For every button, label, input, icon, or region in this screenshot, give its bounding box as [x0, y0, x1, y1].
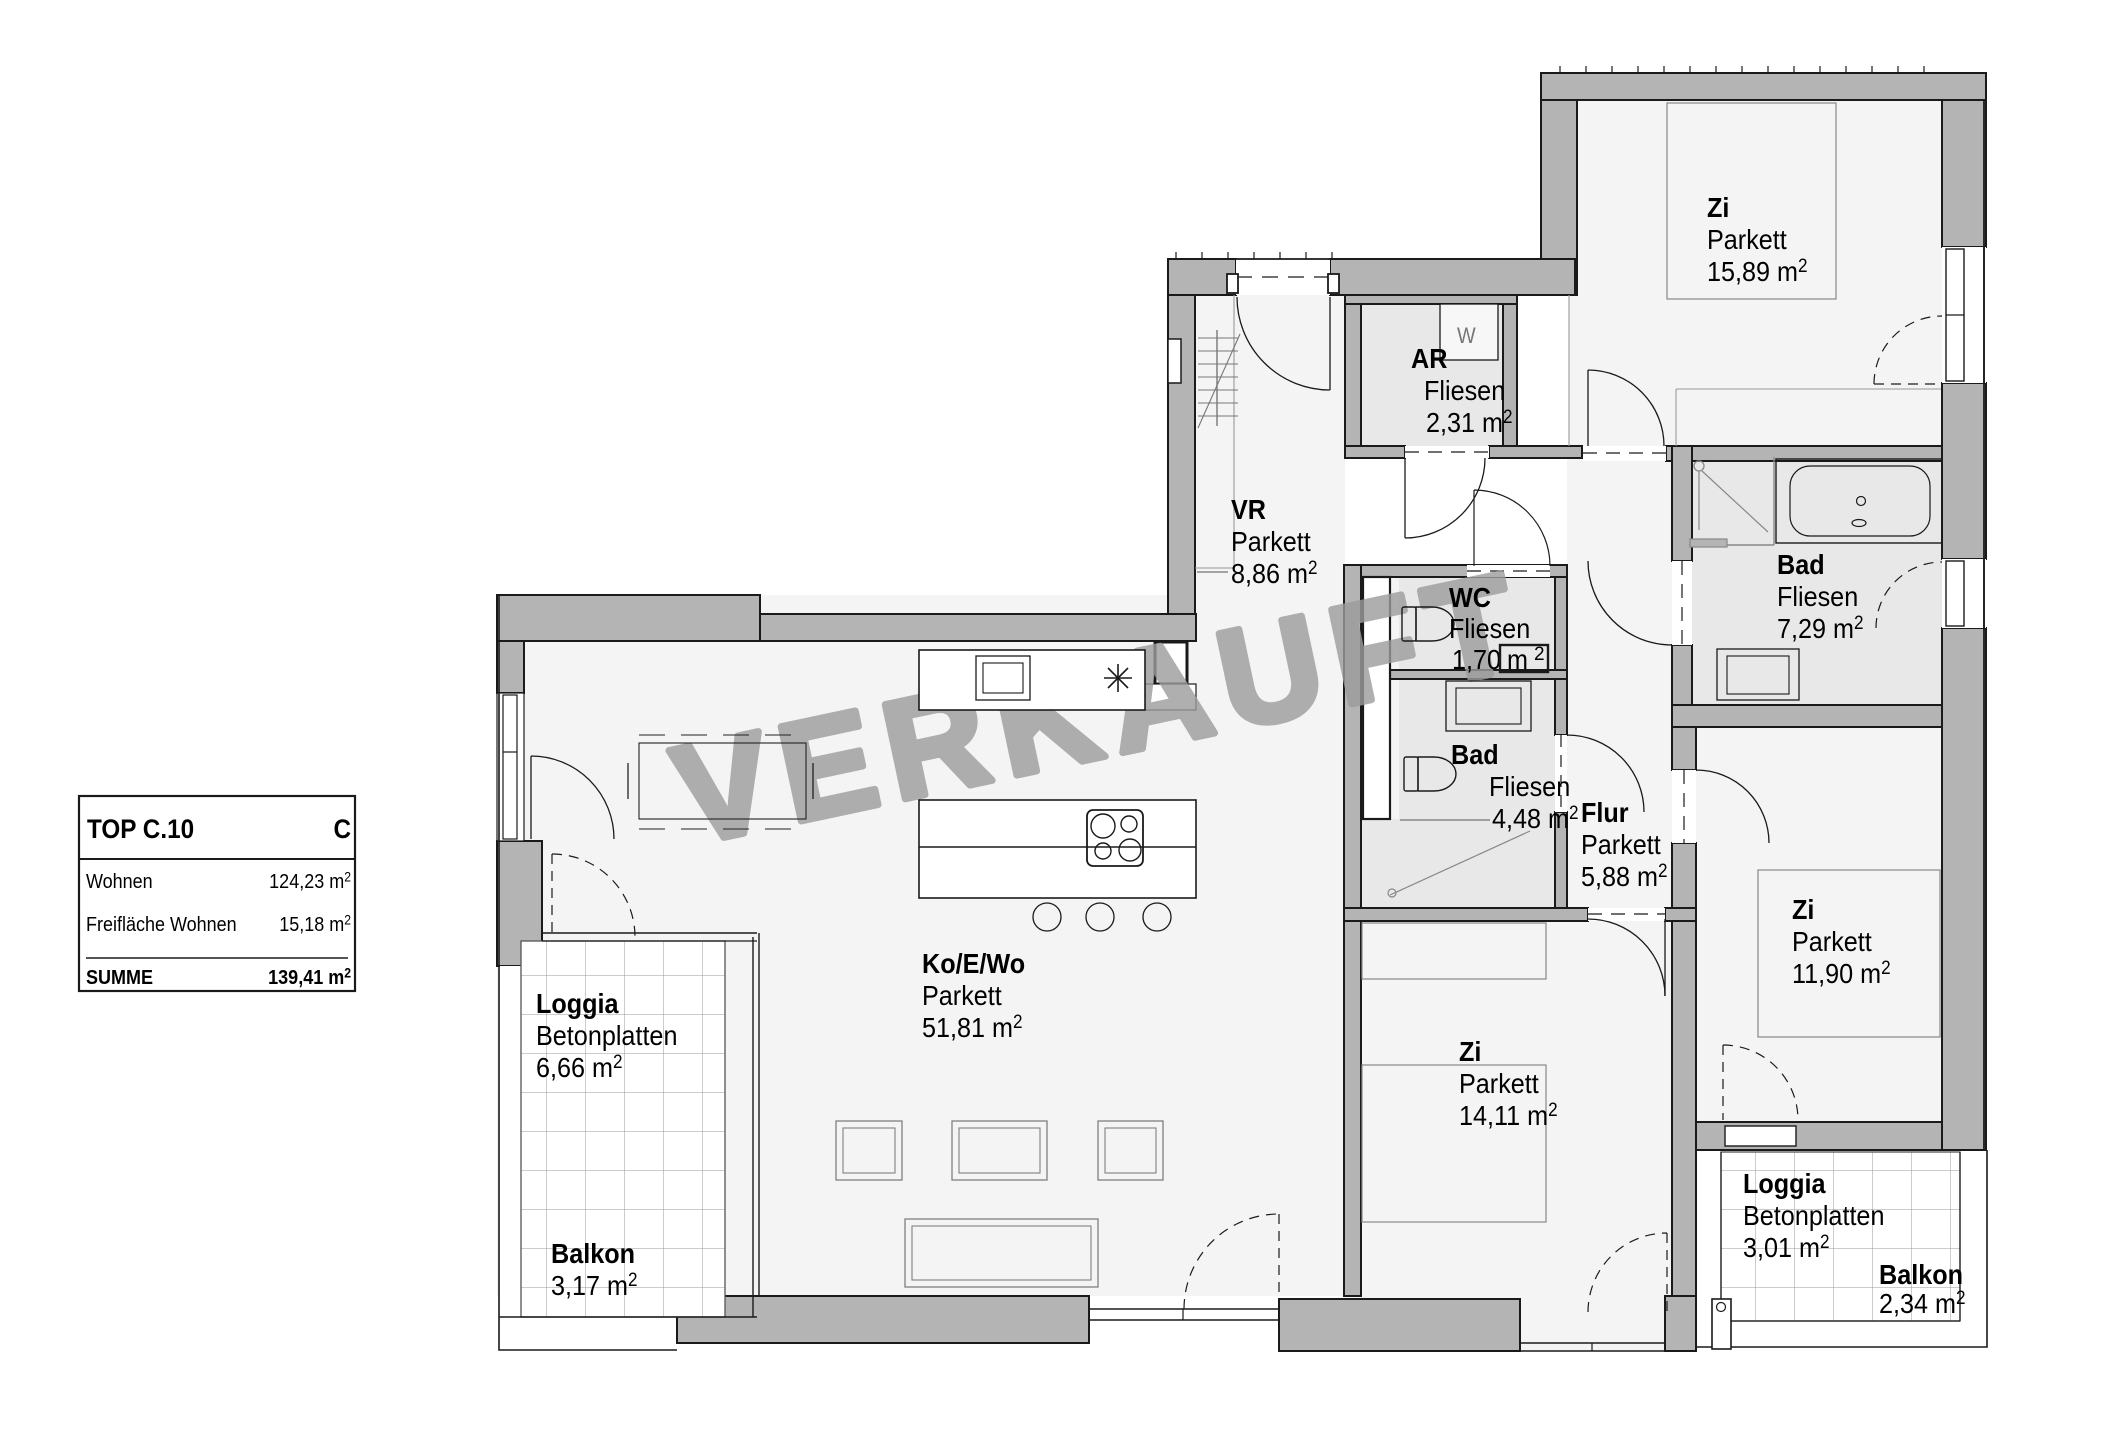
svg-text:14,11 m2: 14,11 m2	[1459, 1099, 1558, 1131]
svg-text:Wohnen: Wohnen	[86, 871, 153, 893]
svg-text:Ko/E/Wo: Ko/E/Wo	[922, 948, 1025, 980]
svg-text:Parkett: Parkett	[1792, 926, 1872, 958]
svg-text:1,70: 1,70	[1452, 644, 1501, 676]
svg-text:7,29 m2: 7,29 m2	[1777, 612, 1864, 644]
svg-text:139,41 m2: 139,41 m2	[268, 965, 351, 989]
svg-text:15,18 m2: 15,18 m2	[279, 912, 351, 936]
svg-text:Loggia: Loggia	[536, 988, 619, 1020]
svg-text:SUMME: SUMME	[86, 967, 153, 989]
svg-text:2,34 m2: 2,34 m2	[1879, 1287, 1966, 1319]
svg-text:Parkett: Parkett	[922, 980, 1002, 1012]
svg-text:2: 2	[1534, 644, 1545, 665]
svg-text:6,66 m2: 6,66 m2	[536, 1051, 623, 1083]
svg-text:TOP C.10: TOP C.10	[87, 815, 194, 844]
svg-text:C: C	[333, 815, 351, 844]
svg-text:5,88 m2: 5,88 m2	[1581, 860, 1668, 892]
svg-text:2,31 m2: 2,31 m2	[1426, 406, 1513, 438]
svg-text:15,89 m2: 15,89 m2	[1707, 255, 1808, 287]
svg-text:Parkett: Parkett	[1707, 224, 1787, 256]
svg-text:4,48 m2: 4,48 m2	[1492, 802, 1579, 834]
svg-text:Fliesen: Fliesen	[1777, 581, 1858, 613]
svg-text:124,23 m2: 124,23 m2	[269, 869, 351, 893]
svg-text:W: W	[1457, 324, 1476, 348]
svg-text:VR: VR	[1231, 494, 1266, 526]
svg-text:Balkon: Balkon	[551, 1238, 635, 1270]
svg-text:Freifläche Wohnen: Freifläche Wohnen	[86, 914, 237, 936]
svg-text:Zi: Zi	[1707, 192, 1729, 224]
svg-text:Bad: Bad	[1451, 739, 1499, 771]
svg-text:Fliesen: Fliesen	[1489, 771, 1570, 803]
svg-text:3,17 m2: 3,17 m2	[551, 1269, 638, 1301]
svg-text:8,86 m2: 8,86 m2	[1231, 557, 1318, 589]
svg-text:Parkett: Parkett	[1459, 1068, 1539, 1100]
svg-text:Zi: Zi	[1459, 1036, 1481, 1068]
svg-text:11,90 m2: 11,90 m2	[1792, 957, 1891, 989]
svg-text:Loggia: Loggia	[1743, 1168, 1826, 1200]
svg-text:Parkett: Parkett	[1231, 526, 1311, 558]
svg-text:Bad: Bad	[1777, 549, 1825, 581]
svg-text:Zi: Zi	[1792, 894, 1814, 926]
svg-text:3,01 m2: 3,01 m2	[1743, 1231, 1830, 1263]
svg-text:Flur: Flur	[1581, 797, 1629, 829]
svg-text:Fliesen: Fliesen	[1449, 613, 1530, 645]
svg-text:Balkon: Balkon	[1879, 1259, 1963, 1291]
svg-text:51,81 m2: 51,81 m2	[922, 1011, 1023, 1043]
svg-text:Parkett: Parkett	[1581, 829, 1661, 861]
svg-text:Betonplatten: Betonplatten	[536, 1020, 677, 1052]
svg-text:WC: WC	[1449, 582, 1491, 614]
svg-text:m: m	[1507, 644, 1528, 676]
svg-text:Betonplatten: Betonplatten	[1743, 1200, 1884, 1232]
svg-text:AR: AR	[1411, 343, 1447, 375]
svg-text:Fliesen: Fliesen	[1424, 375, 1505, 407]
